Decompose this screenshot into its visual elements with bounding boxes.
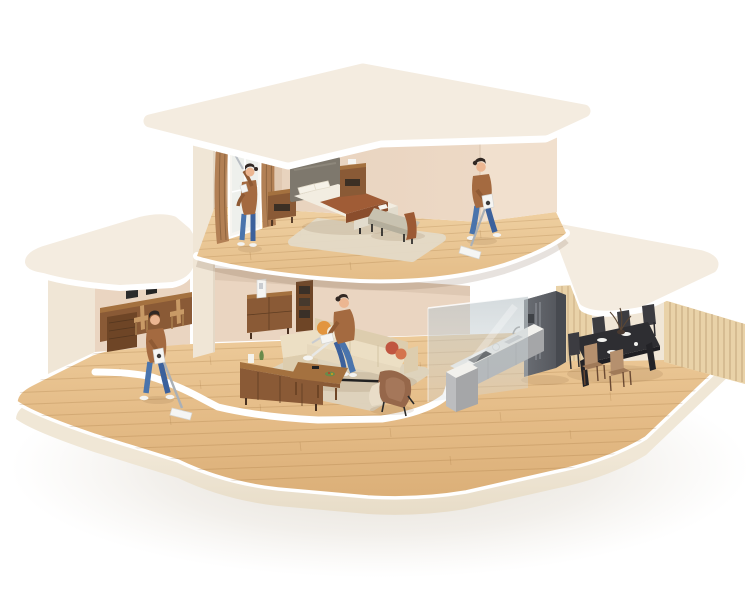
clock: [348, 159, 356, 164]
remote: [312, 366, 319, 369]
vacuum-dock: [257, 279, 266, 298]
pillow-rust: [396, 349, 407, 360]
illustration-canvas: [0, 0, 750, 600]
plate: [597, 338, 607, 342]
cup: [634, 342, 638, 346]
shelf-unit: [296, 280, 313, 332]
vase: [248, 354, 254, 363]
left-roof-slab: [30, 219, 191, 286]
snack-plate: [325, 372, 335, 377]
fridge-dispenser: [528, 314, 534, 323]
house-cutaway-scene: [0, 0, 750, 600]
right-roof-slab: [560, 229, 714, 312]
